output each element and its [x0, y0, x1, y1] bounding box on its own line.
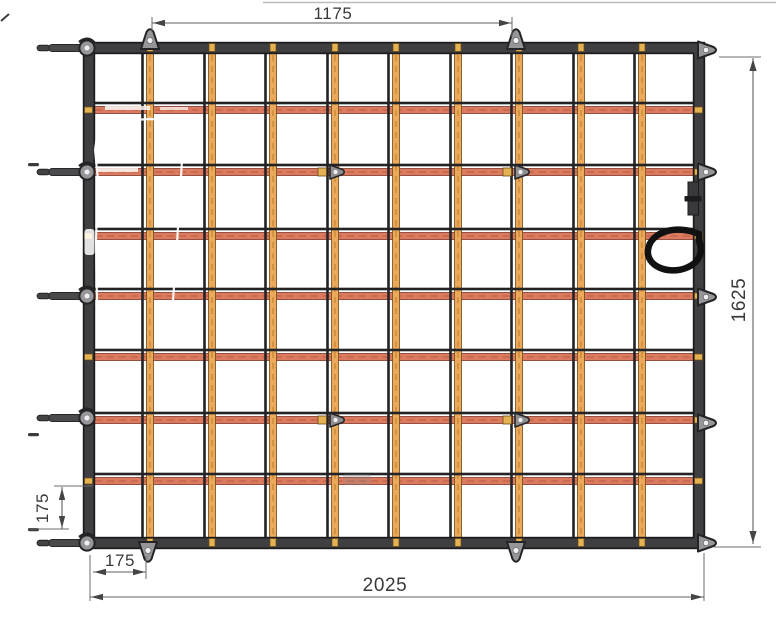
hook-tip — [37, 415, 50, 421]
hook-hole — [85, 294, 90, 299]
dim-label-margin-horizontal: 175 — [105, 551, 135, 570]
arrowhead-top — [59, 488, 65, 500]
buckle-mark — [503, 416, 512, 424]
dim-left-margin-horizontal: 175 — [93, 551, 146, 579]
right-ring-icon — [698, 164, 716, 181]
ring-hole — [518, 418, 522, 422]
hook-tip — [37, 169, 50, 175]
top-ring-icon — [507, 29, 525, 49]
hook-tip-dash — [28, 433, 39, 436]
ring-hole — [703, 540, 708, 545]
ring-hole — [703, 169, 708, 174]
hook-tip — [37, 540, 50, 546]
vertical-cord — [264, 44, 267, 547]
right-ring-icon — [698, 289, 716, 306]
arrowhead-right — [691, 594, 703, 600]
hook-hole — [85, 46, 90, 51]
interior-ring-icon — [503, 165, 529, 179]
interior-ring-icon — [318, 413, 344, 427]
gray-smudge — [343, 474, 371, 485]
white-dash — [105, 106, 150, 110]
strap-wrap-mark — [578, 539, 584, 547]
right-ring-icon — [698, 415, 716, 432]
vertical-strap — [147, 46, 154, 545]
horizontal-cord — [85, 349, 703, 352]
right-ring-icon — [698, 42, 716, 59]
hook-hole — [85, 541, 90, 546]
white-dash — [160, 107, 188, 110]
hook-tip-dash — [28, 528, 39, 531]
ring-hole — [703, 47, 708, 52]
interior-ring-icon — [318, 165, 344, 179]
ring-hole — [703, 420, 708, 425]
strap-wrap-mark — [85, 354, 93, 360]
arrowhead-bottom — [59, 516, 65, 528]
strap-wrap-mark — [695, 107, 703, 113]
strap-wrap-mark — [695, 478, 703, 484]
ring-hole — [703, 294, 708, 299]
ring-hole — [147, 38, 153, 44]
vertical-strap — [270, 46, 277, 545]
handle-buckle — [685, 196, 702, 202]
strap-wrap-mark — [332, 44, 338, 52]
strap-wrap-mark — [209, 539, 215, 547]
strap-wrap-mark — [393, 44, 399, 52]
strap-wrap-mark — [695, 354, 703, 360]
arrowhead-top — [749, 59, 756, 71]
white-scribble — [95, 119, 186, 300]
horizontal-cord — [85, 288, 703, 291]
vertical-strap — [516, 46, 523, 545]
left-hook-icon — [37, 534, 95, 551]
dim-label-bottom-width: 2025 — [363, 575, 408, 596]
buckle-mark — [318, 168, 327, 176]
vertical-strap — [455, 46, 462, 545]
vertical-cord — [633, 44, 636, 547]
vertical-strap — [578, 46, 585, 545]
horizontal-cord — [85, 164, 703, 167]
scan-mark — [1, 14, 9, 21]
dim-right-height: 1625 — [714, 57, 761, 547]
strap-wrap-mark — [85, 107, 93, 113]
strap-wrap-mark — [455, 44, 461, 52]
dim-label-top-width: 1175 — [314, 4, 353, 23]
dim-label-right-height: 1625 — [729, 278, 750, 323]
top-ring-icon — [141, 29, 159, 49]
strap-wrap-mark — [270, 539, 276, 547]
buckle-mark — [503, 168, 512, 176]
bottom-ring-icon — [139, 542, 157, 562]
left-hook-icon — [37, 39, 95, 56]
arrowhead-right — [499, 20, 511, 26]
left-hook-icon — [37, 287, 95, 304]
ring-hole — [518, 170, 522, 174]
ring-hole — [333, 170, 337, 174]
vertical-cord — [326, 44, 329, 547]
strap-wrap-mark — [578, 44, 584, 52]
bottom-ring-icon — [507, 542, 525, 562]
strap-wrap-mark — [332, 539, 338, 547]
vertical-cord — [203, 44, 206, 547]
vertical-cord — [449, 44, 452, 547]
cargo-net-technical-drawing: 1175 1625 2025 175 — [0, 0, 777, 617]
horizontal-cord — [85, 412, 703, 415]
vertical-strap — [393, 46, 400, 545]
horizontal-cord — [85, 102, 703, 105]
white-patch — [85, 229, 95, 255]
dim-top-width: 1175 — [152, 4, 512, 37]
strap-wrap-mark — [393, 539, 399, 547]
ring-hole — [333, 418, 337, 422]
dim-bottom-width: 2025 — [90, 553, 704, 601]
interior-ring-icon — [503, 413, 529, 427]
ring-hole — [145, 548, 151, 554]
vertical-cord — [387, 44, 390, 547]
hook-tip — [37, 293, 50, 299]
hook-tip — [37, 45, 50, 51]
ring-hole — [513, 38, 519, 44]
dim-label-margin-vertical: 175 — [33, 493, 52, 523]
hook-tip-dash — [28, 163, 39, 166]
strap-wrap-mark — [639, 44, 645, 52]
left-hook-icon — [37, 409, 95, 426]
buckle-mark — [318, 416, 327, 424]
left-hook-icon — [37, 163, 95, 180]
strap-wrap-mark — [209, 44, 215, 52]
horizontal-cord — [85, 473, 703, 476]
strap-wrap-mark — [270, 44, 276, 52]
hook-hole — [85, 416, 90, 421]
ring-hole — [513, 548, 519, 554]
strap-wrap-mark — [639, 539, 645, 547]
vertical-cord — [510, 44, 513, 547]
arrowhead-left — [153, 20, 165, 26]
right-ring-icon — [698, 535, 716, 552]
strap-wrap-mark — [455, 539, 461, 547]
vertical-cord — [572, 44, 575, 547]
arrowhead-bottom — [749, 531, 756, 543]
white-dash — [98, 168, 138, 172]
vertical-strap — [639, 46, 646, 545]
vertical-strap — [332, 46, 339, 545]
vertical-strap — [209, 46, 216, 545]
arrowhead-left — [91, 594, 103, 600]
hook-hole — [85, 170, 90, 175]
strap-wrap-mark — [85, 478, 93, 484]
